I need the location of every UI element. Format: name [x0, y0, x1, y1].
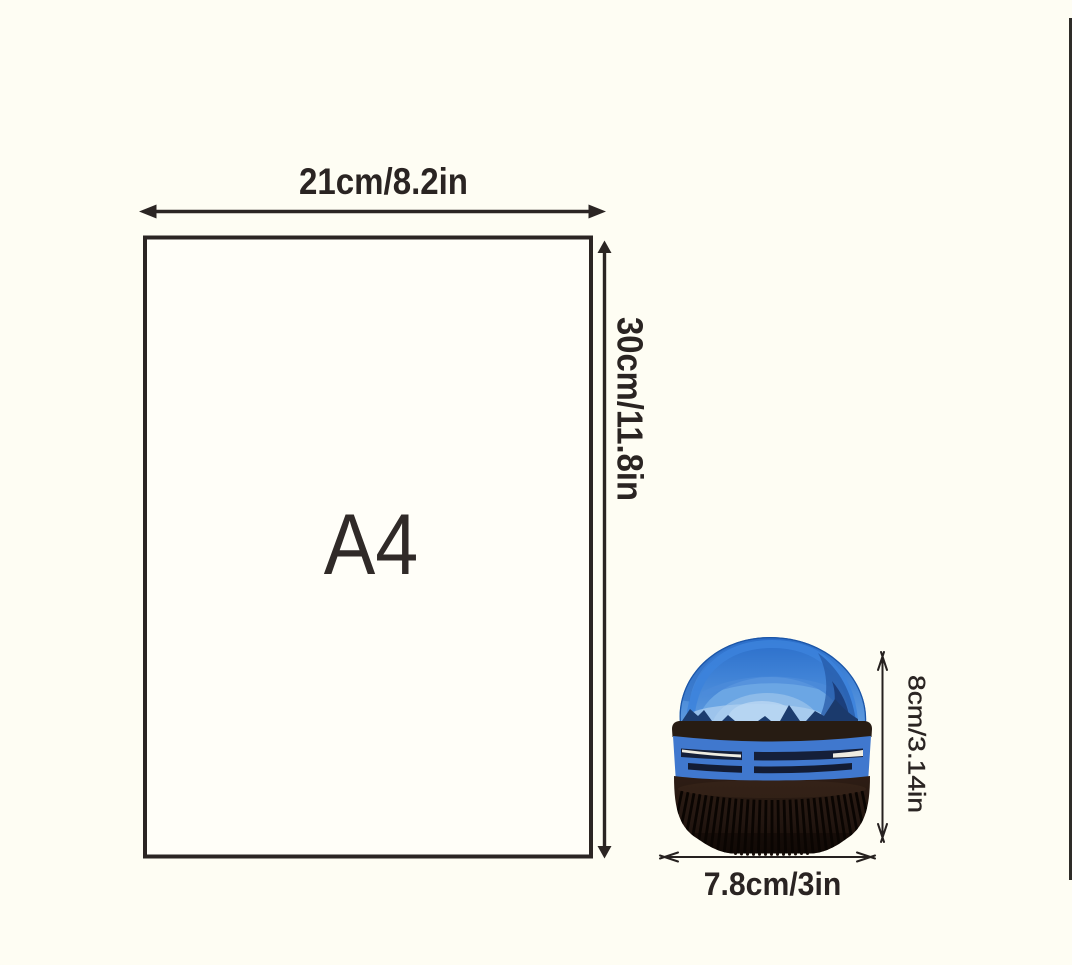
svg-text:8cm/3.14in: 8cm/3.14in [903, 675, 930, 813]
svg-text:21cm/8.2in: 21cm/8.2in [299, 160, 468, 202]
svg-text:7.8cm/3in: 7.8cm/3in [704, 866, 842, 902]
svg-text:A4: A4 [324, 497, 419, 593]
svg-text:30cm/11.8in: 30cm/11.8in [610, 317, 651, 501]
